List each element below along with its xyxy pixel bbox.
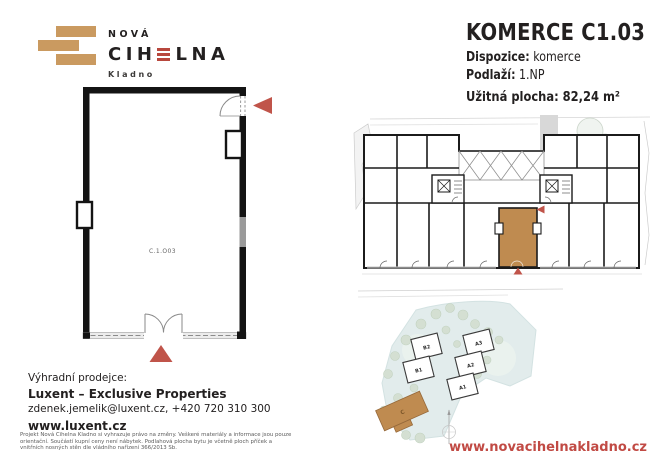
brand-name-main-post: LNA (175, 44, 229, 65)
spec-plocha: Užitná plocha: 82,24 m² (466, 89, 645, 105)
brand-logo: NOVÁ CIHLNA Kladno (38, 26, 229, 79)
brand-name-main-pre: CIH (108, 44, 156, 65)
brand-bricks-icon (38, 26, 96, 66)
seller-intro: Výhradní prodejce: (28, 372, 271, 384)
unit-walls (83, 87, 246, 339)
double-door (144, 314, 183, 339)
building-floor-plan (352, 113, 652, 278)
brand-name-main: CIHLNA (108, 44, 229, 65)
brand-city: Kladno (108, 70, 229, 79)
unit-niche (495, 223, 503, 234)
project-website-link[interactable]: www.novacihelnakladno.cz (449, 440, 647, 455)
site-plan: B2 B1 A3 A2 A1 C (358, 288, 583, 463)
highlighted-unit-c103 (499, 208, 537, 267)
unit-header: KOMERCE C1.03 Dispozice: komerce Podlaží… (466, 20, 645, 105)
right-wall-niche (226, 131, 242, 158)
brand-wordmark: NOVÁ CIHLNA Kladno (108, 26, 229, 79)
unit-niche (533, 223, 541, 234)
page-title: KOMERCE C1.03 (466, 20, 645, 46)
seller-website-link[interactable]: www.luxent.cz (28, 419, 127, 433)
window-segment (240, 217, 247, 247)
seller-block: Výhradní prodejce: Luxent – Exclusive Pr… (28, 372, 271, 434)
spec-dispozice: Dispozice: komerce (466, 50, 645, 65)
spec-podlazi: Podlaží: 1.NP (466, 68, 645, 83)
room-label: C.1.O03 (149, 248, 176, 255)
seller-contact[interactable]: zdenek.jemelik@luxent.cz, +420 720 310 3… (28, 403, 271, 415)
unit-floor-plan: C.1.O03 (60, 83, 280, 368)
brochure-page: NOVÁ CIHLNA Kladno KOMERCE C1.03 Dispozi… (0, 0, 665, 468)
disclaimer-text: Projekt Nová Cihelna Kladno si vyhrazuje… (20, 432, 296, 452)
entry-door (220, 96, 247, 116)
brand-letter-e-bars-icon (157, 48, 170, 62)
entry-arrow-icon (253, 97, 272, 114)
left-wall-niche (77, 202, 92, 228)
entry-arrow-icon (150, 345, 173, 362)
brand-name-top: NOVÁ (108, 29, 229, 40)
site-roads (358, 289, 563, 297)
seller-name: Luxent – Exclusive Properties (28, 387, 271, 401)
